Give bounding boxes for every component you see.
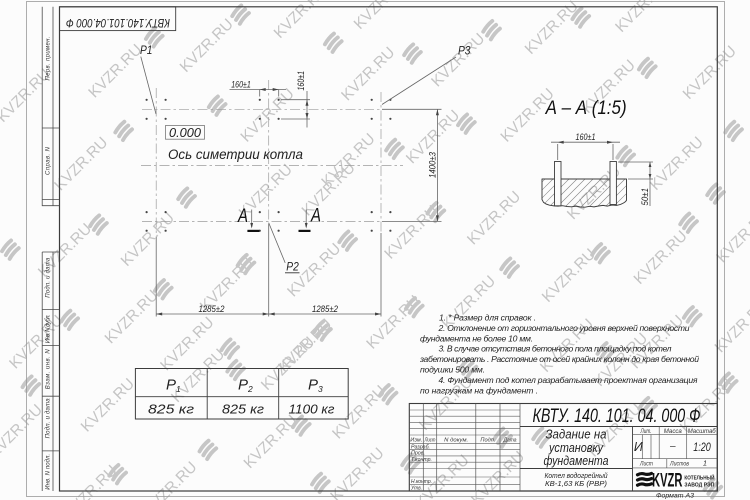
svg-text:KVZR.RU: KVZR.RU (78, 375, 138, 435)
svg-text:P1: P1 (140, 45, 153, 57)
svg-text:KVZR.RU: KVZR.RU (338, 44, 398, 104)
svg-text:Перв. примен.: Перв. примен. (46, 37, 52, 81)
svg-text:KVZR.RU: KVZR.RU (522, 0, 582, 58)
svg-text:Н.контр.: Н.контр. (411, 479, 432, 485)
svg-text:P2: P2 (238, 377, 253, 395)
svg-text:KVZR.RU: KVZR.RU (680, 43, 740, 103)
svg-text:по нагрузкам на фундамент .: по нагрузкам на фундамент . (420, 385, 538, 395)
svg-text:KVZR.RU: KVZR.RU (351, 0, 411, 33)
svg-text:KVZR.RU: KVZR.RU (238, 85, 298, 145)
svg-text:А: А (237, 206, 248, 227)
svg-text:–: – (669, 441, 676, 452)
svg-text:P2: P2 (286, 262, 299, 274)
svg-text:1100 кг: 1100 кг (289, 402, 336, 417)
svg-text:КОТЕЛЬНЫЙ: КОТЕЛЬНЫЙ (684, 474, 714, 482)
svg-text:KVZR.RU: KVZR.RU (35, 220, 95, 280)
svg-text:KVZR.RU: KVZR.RU (647, 134, 707, 194)
svg-text:Взам. инв. N: Взам. инв. N (46, 349, 52, 390)
svg-text:КВТУ. 140. 101. 04. 000 Ф: КВТУ. 140. 101. 04. 000 Ф (533, 405, 701, 427)
svg-text:KVZR.RU: KVZR.RU (85, 41, 145, 101)
svg-text:Подп. и дата: Подп. и дата (46, 257, 52, 298)
svg-text:KVZR.RU: KVZR.RU (612, 0, 672, 36)
svg-text:KVZR.RU: KVZR.RU (713, 206, 750, 266)
svg-text:KVZR.RU: KVZR.RU (631, 228, 691, 288)
svg-text:KVZR.RU: KVZR.RU (539, 246, 599, 306)
svg-text:0.000: 0.000 (169, 125, 202, 140)
svg-text:забетонировать . Расстояние от: забетонировать . Расстояние от осей край… (419, 354, 699, 364)
svg-text:Задание на: Задание на (546, 428, 607, 442)
svg-text:Утв.: Утв. (410, 486, 422, 492)
svg-text:KVZR.RU: KVZR.RU (6, 312, 66, 372)
svg-text:KVZR.RU: KVZR.RU (241, 412, 301, 472)
svg-text:Лист: Лист (639, 461, 653, 468)
svg-text:Инв. N подл.: Инв. N подл. (46, 454, 52, 490)
svg-text:Формат А3: Формат А3 (656, 493, 694, 500)
svg-text:2. Отклонение от горизонтальн: 2. Отклонение от горизонтального уровня … (438, 323, 690, 333)
svg-text:KVZR.RU: KVZR.RU (61, 462, 121, 500)
svg-text:1. * Размер для справок .: 1. * Размер для справок . (439, 312, 536, 322)
svg-text:И: И (634, 440, 643, 454)
svg-text:160±1: 160±1 (576, 132, 596, 142)
svg-text:P1: P1 (166, 377, 181, 395)
svg-text:А – А (1:5): А – А (1:5) (545, 98, 627, 119)
svg-text:160±1: 160±1 (231, 79, 251, 89)
svg-text:KVZR: KVZR (652, 470, 683, 491)
svg-text:Подп. и дата: Подп. и дата (46, 398, 52, 439)
svg-text:1285±2: 1285±2 (199, 304, 225, 314)
svg-text:ЗАВОД РЭП: ЗАВОД РЭП (684, 483, 714, 489)
svg-text:Листов: Листов (669, 461, 689, 468)
svg-text:825 кг: 825 кг (148, 402, 195, 417)
svg-text:1:20: 1:20 (693, 440, 711, 454)
svg-text:1: 1 (703, 459, 707, 468)
svg-text:160±1: 160±1 (296, 71, 306, 91)
svg-text:фундамента не более 10 мм.: фундамента не более 10 мм. (420, 333, 533, 343)
svg-text:N докум.: N докум. (444, 438, 468, 444)
svg-text:Дата: Дата (503, 438, 518, 444)
svg-text:фундамента: фундамента (544, 454, 609, 468)
svg-text:А: А (310, 206, 321, 227)
svg-text:1400±3: 1400±3 (427, 151, 437, 178)
svg-text:50±1: 50±1 (640, 188, 650, 206)
svg-text:Масштаб: Масштаб (688, 428, 716, 435)
svg-text:1285±2: 1285±2 (312, 304, 338, 314)
svg-text:KVZR.RU: KVZR.RU (0, 401, 46, 461)
svg-text:KVZR.RU: KVZR.RU (140, 459, 200, 500)
svg-text:КВ-1,63 КБ (РВР): КВ-1,63 КБ (РВР) (545, 479, 608, 488)
svg-text:Масса: Масса (664, 428, 683, 435)
svg-text:Подп.: Подп. (480, 438, 495, 444)
svg-text:Т.контр.: Т.контр. (411, 457, 432, 463)
svg-text:KVZR.RU: KVZR.RU (118, 210, 178, 270)
svg-text:P3: P3 (308, 377, 323, 395)
svg-text:КВТУ.140.101.04.000 Ф: КВТУ.140.101.04.000 Ф (66, 16, 170, 28)
svg-text:Изм.: Изм. (410, 438, 422, 444)
svg-text:установку: установку (548, 441, 604, 455)
svg-text:KVZR.RU: KVZR.RU (464, 188, 524, 248)
svg-text:Инв. N дубл.: Инв. N дубл. (46, 314, 52, 343)
svg-text:P3: P3 (458, 46, 471, 58)
svg-text:KVZR.RU: KVZR.RU (51, 134, 111, 194)
svg-text:Ось симетрии котла: Ось симетрии котла (168, 146, 303, 162)
svg-text:KVZR.RU: KVZR.RU (428, 30, 488, 90)
svg-text:Справ. N: Справ. N (46, 146, 52, 175)
svg-text:KVZR.RU: KVZR.RU (102, 287, 162, 347)
svg-text:подушки 500 мм.: подушки 500 мм. (420, 365, 485, 375)
svg-text:Лист: Лист (424, 438, 436, 444)
svg-text:KVZR.RU: KVZR.RU (363, 292, 423, 352)
svg-text:KVZR.RU: KVZR.RU (177, 16, 237, 76)
svg-text:825 кг: 825 кг (222, 402, 265, 417)
svg-text:KVZR.RU: KVZR.RU (327, 445, 387, 500)
svg-text:4. Фундамент под котел разраб: 4. Фундамент под котел разрабатывает про… (439, 375, 698, 385)
svg-text:Лит.: Лит. (640, 428, 652, 435)
svg-text:Пров.: Пров. (411, 451, 425, 457)
svg-text:3. В случае отсутствия бетонн: 3. В случае отсутствия бетонного пола пл… (439, 344, 672, 354)
svg-text:Разраб.: Разраб. (411, 444, 430, 450)
